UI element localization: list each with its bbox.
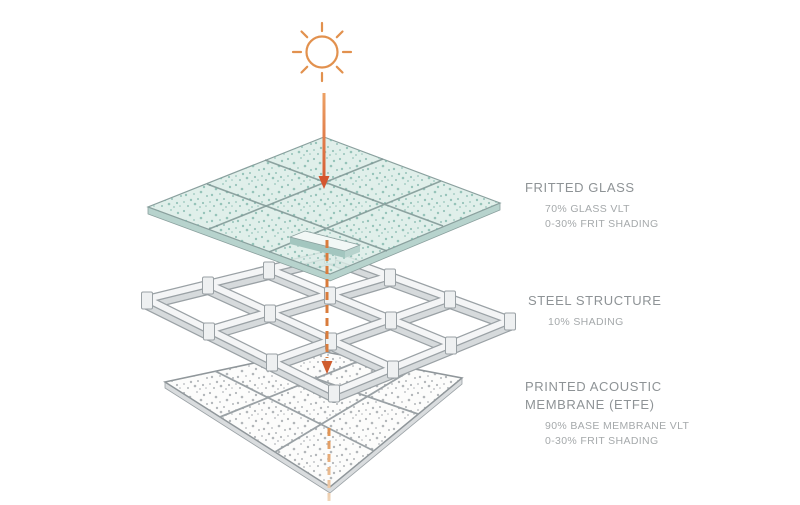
layer-label-steel-structure: STEEL STRUCTURE 10% SHADING bbox=[528, 292, 661, 330]
layer-label-detail: 0-30% FRIT SHADING bbox=[545, 434, 695, 449]
layered-roof-diagram: FRITTED GLASS 70% GLASS VLT 0-30% FRIT S… bbox=[0, 0, 800, 505]
layer-label-heading: STEEL STRUCTURE bbox=[528, 292, 661, 310]
layer-label-fritted-glass: FRITTED GLASS 70% GLASS VLT 0-30% FRIT S… bbox=[525, 179, 658, 232]
layer-label-heading: PRINTED ACOUSTIC MEMBRANE (ETFE) bbox=[525, 378, 695, 414]
layer-label-heading: FRITTED GLASS bbox=[525, 179, 658, 197]
layer-label-detail: 70% GLASS VLT bbox=[545, 202, 658, 217]
layer-label-detail: 90% BASE MEMBRANE VLT bbox=[545, 419, 695, 434]
sun-icon bbox=[293, 23, 351, 81]
layer-label-printed-acoustic-membrane: PRINTED ACOUSTIC MEMBRANE (ETFE) 90% BAS… bbox=[525, 378, 695, 449]
membrane-layer-graphic bbox=[165, 350, 462, 493]
layer-label-detail: 0-30% FRIT SHADING bbox=[545, 217, 658, 232]
layer-label-detail: 10% SHADING bbox=[548, 315, 661, 330]
